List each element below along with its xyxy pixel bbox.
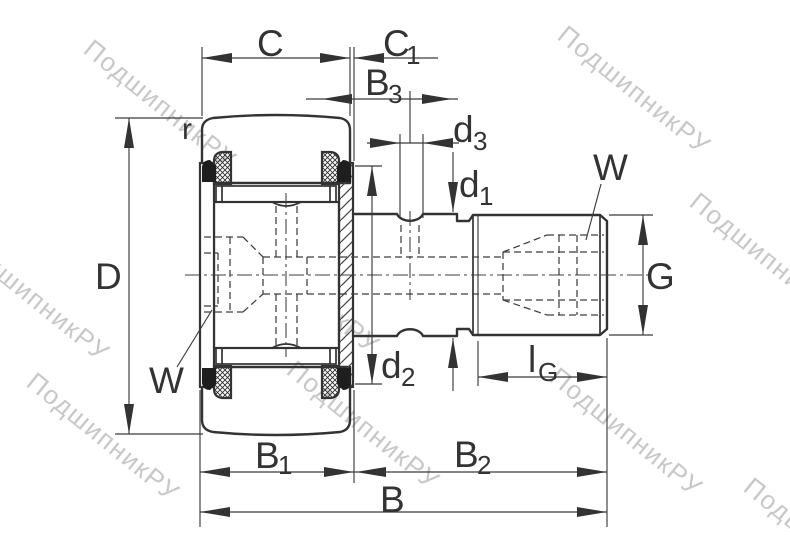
dim-label-d1: d xyxy=(459,164,480,205)
seal-bottom-right xyxy=(322,366,339,398)
leader-W-right xyxy=(586,184,601,240)
dim-label-d2-sub: 2 xyxy=(401,362,415,392)
dim-label-b2-sub: 2 xyxy=(477,450,491,480)
watermark-text: ПодшипникРУ xyxy=(552,19,716,160)
dim-label-d3-sub: 3 xyxy=(473,126,487,156)
needle-roller-row-bottom xyxy=(216,348,336,364)
watermark-text: ПодшипникРУ xyxy=(281,354,445,495)
dim-label-c: C xyxy=(257,23,284,64)
seal-top-right xyxy=(322,152,339,184)
cam-follower-technical-drawing: ПодшипникРУ ПодшипникРУ ПодшипникРУ Подш… xyxy=(0,0,790,547)
dim-label-d2: d xyxy=(381,345,402,386)
watermark-text: ПодшипникРУ xyxy=(684,186,790,327)
dim-label-d-outer: D xyxy=(95,256,122,297)
dim-label-lg-sub: G xyxy=(538,357,558,387)
dim-label-r: r xyxy=(182,113,192,146)
dim-label-b2: B xyxy=(454,434,479,475)
dim-label-b3: B xyxy=(365,62,390,103)
dim-label-w-left: W xyxy=(149,360,184,401)
dim-label-w-right: W xyxy=(593,147,628,188)
dim-label-d1-sub: 1 xyxy=(479,181,493,211)
dim-label-b1: B xyxy=(255,435,280,476)
seal-top-left xyxy=(214,152,231,184)
needle-roller-row-top xyxy=(216,186,336,202)
watermark-text: ПодшипникРУ xyxy=(544,361,708,502)
dim-label-b1-sub: 1 xyxy=(278,450,292,480)
seal-bottom-left xyxy=(214,366,231,398)
dim-label-g: G xyxy=(646,256,675,297)
dim-label-b3-sub: 3 xyxy=(388,79,402,109)
drawing-canvas: ПодшипникРУ ПодшипникРУ ПодшипникРУ Подш… xyxy=(0,0,790,547)
dim-label-c1-sub: 1 xyxy=(406,40,420,70)
dim-label-b: B xyxy=(380,479,405,520)
watermark-text: ПодшипникРУ xyxy=(738,471,790,547)
dim-label-d3: d xyxy=(453,109,474,150)
dim-label-lg: l xyxy=(528,339,536,380)
